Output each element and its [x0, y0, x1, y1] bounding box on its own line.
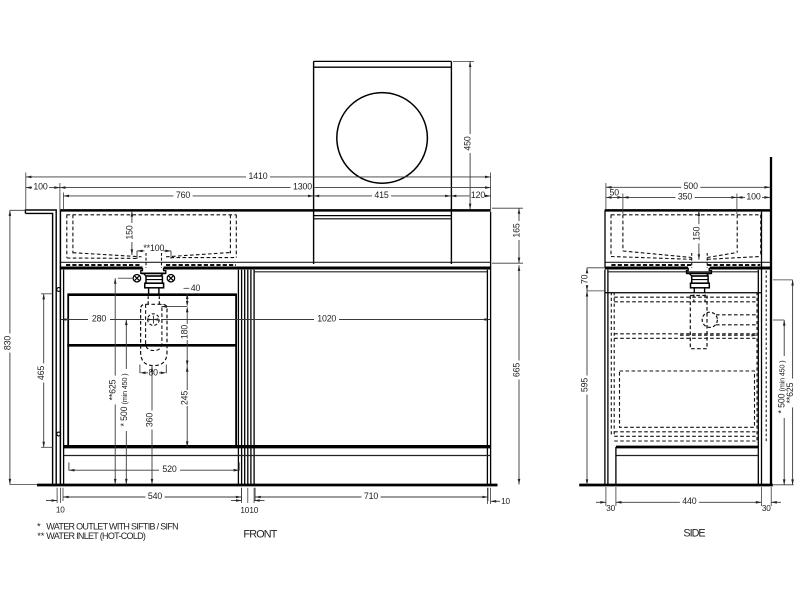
svg-text:665: 665	[512, 363, 522, 377]
svg-text:450: 450	[463, 136, 473, 150]
svg-text:440: 440	[682, 496, 696, 506]
svg-text:180: 180	[180, 325, 190, 339]
svg-text:10: 10	[249, 506, 258, 515]
svg-text:1300: 1300	[293, 182, 312, 192]
svg-text:150: 150	[124, 225, 134, 239]
svg-text:595: 595	[580, 378, 590, 392]
svg-text:10: 10	[501, 497, 510, 506]
svg-text:FRONT: FRONT	[243, 528, 277, 540]
svg-text:SIDE: SIDE	[683, 528, 705, 540]
svg-text:120: 120	[471, 190, 485, 200]
svg-text:* 500 (min 450 ): * 500 (min 450 )	[119, 374, 129, 427]
svg-text:1410: 1410	[249, 171, 268, 181]
svg-text:WATER INLET (HOT-COLD): WATER INLET (HOT-COLD)	[46, 531, 146, 541]
svg-text:415: 415	[374, 190, 388, 200]
svg-text:520: 520	[162, 464, 176, 474]
svg-text:40: 40	[191, 283, 201, 293]
svg-text:360: 360	[145, 413, 155, 427]
svg-text:150: 150	[691, 226, 701, 240]
svg-text:10: 10	[56, 505, 65, 514]
svg-text:465: 465	[36, 366, 46, 380]
svg-text:**625: **625	[785, 382, 795, 403]
svg-text:70: 70	[580, 274, 590, 284]
svg-text:1020: 1020	[317, 314, 336, 324]
svg-text:540: 540	[148, 491, 162, 501]
svg-text:30: 30	[762, 504, 771, 513]
svg-text:WATER OUTLET WITH SIFTIB / SIF: WATER OUTLET WITH SIFTIB / SIFN	[46, 522, 178, 532]
svg-text:100: 100	[746, 191, 760, 201]
svg-text:500: 500	[684, 181, 698, 191]
svg-text:830: 830	[2, 336, 12, 350]
svg-text:350: 350	[678, 191, 692, 201]
svg-text:710: 710	[364, 491, 378, 501]
svg-text:10: 10	[240, 506, 249, 515]
svg-text:100: 100	[33, 182, 47, 192]
svg-text:165: 165	[512, 223, 522, 237]
svg-text:245: 245	[180, 391, 190, 405]
svg-text:760: 760	[176, 190, 190, 200]
svg-text:**100: **100	[143, 243, 164, 253]
svg-text:50: 50	[610, 187, 620, 197]
svg-text:**: **	[37, 531, 45, 542]
svg-text:280: 280	[92, 314, 106, 324]
svg-text:80: 80	[148, 367, 158, 377]
svg-text:**625: **625	[108, 379, 118, 400]
svg-text:30: 30	[606, 504, 615, 513]
